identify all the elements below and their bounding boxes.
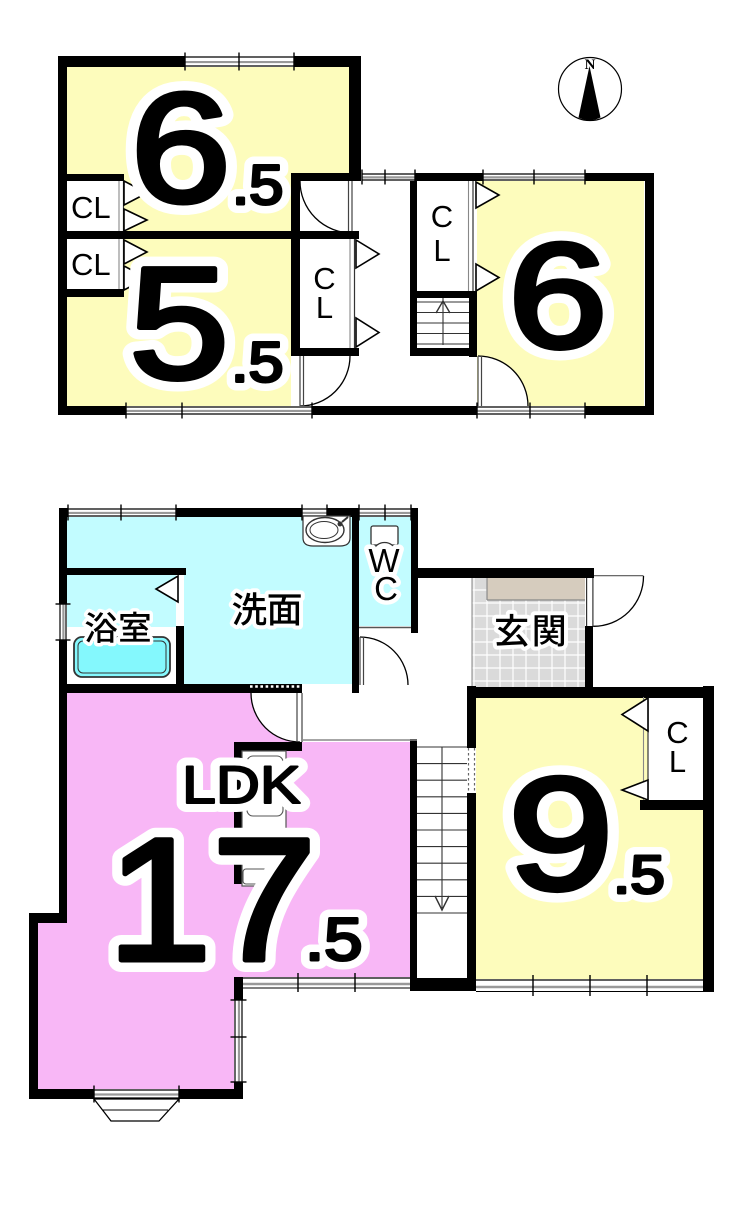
svg-text:L: L — [316, 290, 333, 325]
svg-text:C: C — [431, 199, 453, 234]
svg-text:CL: CL — [71, 247, 111, 282]
svg-text:.5: .5 — [232, 155, 283, 217]
svg-text:N: N — [585, 57, 596, 73]
svg-text:L: L — [669, 744, 686, 779]
svg-text:9: 9 — [508, 745, 614, 924]
svg-text:5: 5 — [129, 234, 229, 412]
svg-text:.5: .5 — [305, 905, 363, 973]
svg-text:6: 6 — [508, 212, 608, 378]
svg-text:L: L — [433, 233, 450, 268]
svg-text:CL: CL — [71, 190, 111, 225]
svg-text:.5: .5 — [231, 330, 283, 393]
svg-text:17: 17 — [107, 801, 317, 997]
svg-text:.5: .5 — [613, 845, 665, 905]
svg-text:C: C — [374, 570, 398, 607]
svg-text:6: 6 — [131, 60, 231, 234]
